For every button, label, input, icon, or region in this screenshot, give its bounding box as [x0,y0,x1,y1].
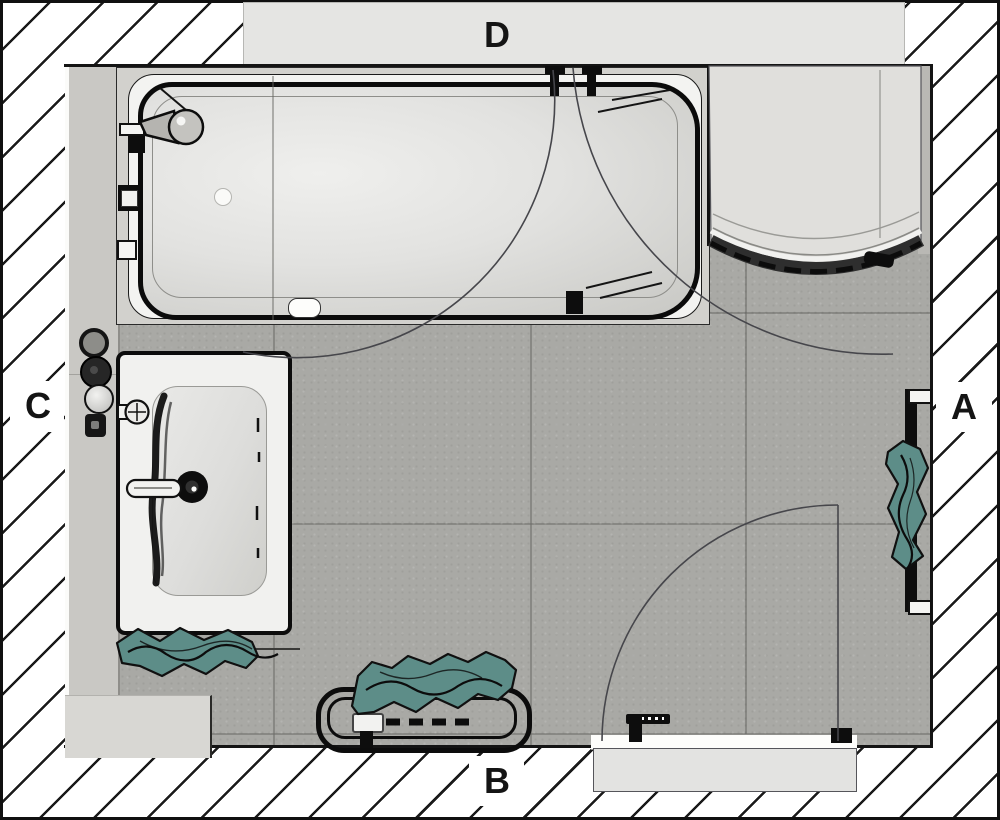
tub-valve [119,123,145,136]
screen-hinge [288,298,321,318]
wall-fitting-knob-dot [90,366,98,374]
shower-side-panel [707,66,724,246]
rail-bracket [908,600,932,615]
screen-bracket [566,291,583,314]
door-hinge [831,728,852,743]
floor-plan-canvas: D A B C [0,0,1000,820]
opening-label-d: D [467,11,527,59]
washbasin-bowl [152,386,267,596]
screen-clamp [550,66,559,96]
opening-label-a: A [934,383,994,431]
entry-door-slab [593,748,857,792]
tub-fitting-knob [121,190,138,207]
wall-fitting-box-dot [91,421,99,429]
tile-grout-line [705,312,930,314]
tub-fitting [128,136,145,153]
wall-fitting-ring [79,328,109,358]
rail-bracket [908,389,932,404]
corner-ledge-block [65,695,212,758]
shower-wall-strip [918,66,930,254]
opening-label-b: B [467,757,527,805]
screen-clamp [587,66,596,96]
radiator-bracket [352,713,384,733]
shelf-line [118,648,300,650]
tub-overflow [214,188,232,206]
wall-fitting-ball [84,384,114,414]
tile-grout-line [272,76,274,320]
radiator-mount [360,731,373,748]
tile-grout-line [745,67,747,745]
door-handle-post [629,714,642,742]
wall-edge-right [930,64,933,748]
opening-label-c: C [8,382,68,430]
tub-fitting [117,240,137,260]
wall-towel-rail [905,389,917,612]
window-band [243,2,905,69]
